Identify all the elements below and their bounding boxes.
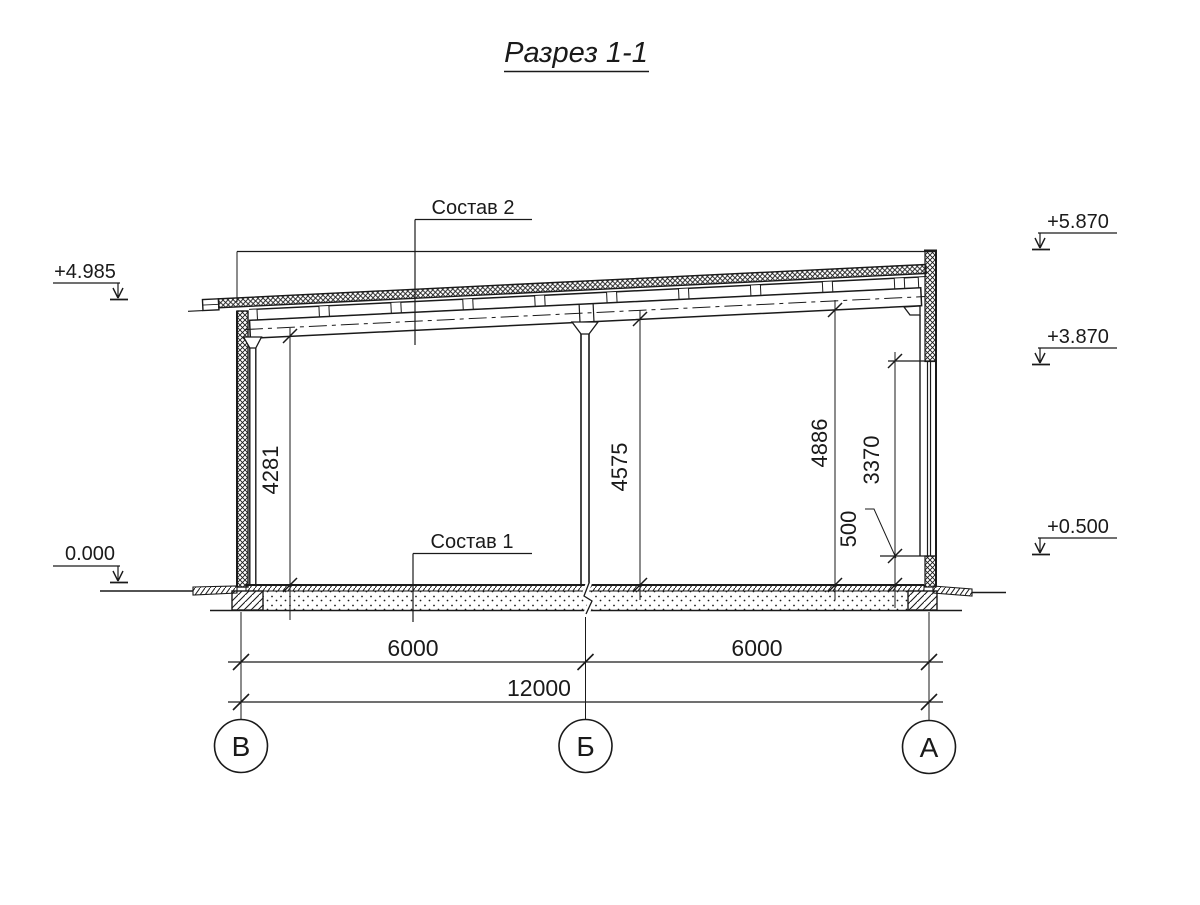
dim-span-left: 6000 — [387, 635, 438, 661]
dim-height-right: 4886 — [807, 419, 832, 468]
right-footing — [908, 591, 937, 610]
left-apron — [193, 586, 237, 595]
axis-label-a: А — [920, 732, 939, 763]
right-wall-upper — [925, 252, 936, 362]
elevation-right-mid-value: +3.870 — [1047, 326, 1109, 348]
eave-drip-line — [188, 311, 203, 312]
drawing-sheet: Разрез 1-1 — [0, 0, 1200, 900]
dim-total: 12000 — [507, 675, 571, 701]
elevation-right-low-value: +0.500 — [1047, 516, 1109, 538]
dim-window-height: 3370 — [859, 436, 884, 485]
dim-height-left: 4281 — [258, 446, 283, 495]
axis-circle-b: Б — [559, 720, 612, 773]
axis-circle-v: В — [215, 720, 268, 773]
callout-roof-label: Состав 2 — [432, 197, 515, 219]
right-wall-lower — [925, 556, 936, 587]
left-footing — [232, 591, 263, 610]
elevation-left-zero-value: 0.000 — [65, 543, 115, 565]
dim-height-mid: 4575 — [607, 443, 632, 492]
dim-span-right: 6000 — [731, 635, 782, 661]
section-drawing: Разрез 1-1 — [0, 0, 1200, 900]
axis-circle-a: А — [903, 721, 956, 774]
axis-label-v: В — [232, 731, 251, 762]
elevation-right-top-value: +5.870 — [1047, 211, 1109, 233]
title-text: Разрез 1-1 — [504, 37, 648, 69]
dim-sill-height: 500 — [836, 511, 861, 548]
elevation-left-top-value: +4.985 — [54, 261, 116, 283]
drawing-title: Разрез 1-1 — [504, 37, 649, 72]
floor-slab — [100, 583, 1006, 614]
callout-floor-label: Состав 1 — [431, 531, 514, 553]
axis-label-b: Б — [576, 731, 594, 762]
